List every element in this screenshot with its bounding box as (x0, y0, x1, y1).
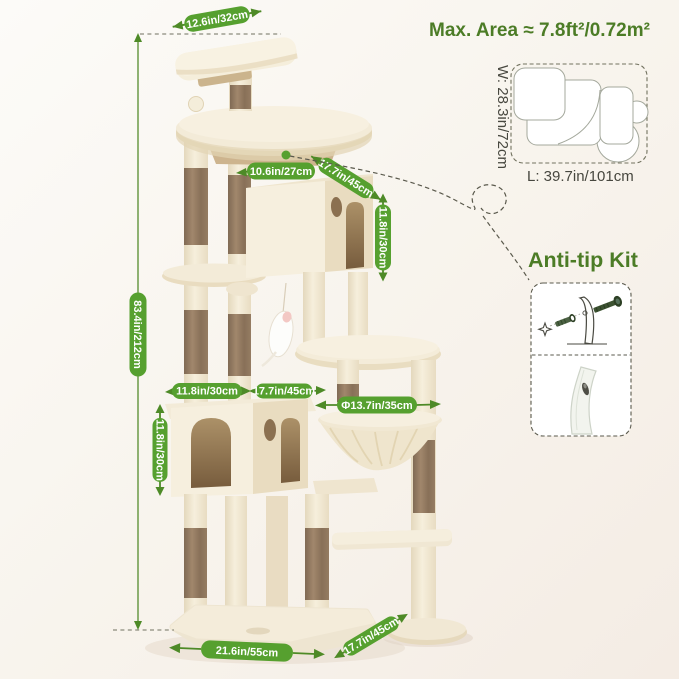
svg-text:11.8in/30cm: 11.8in/30cm (376, 207, 388, 269)
svg-text:11.8in/30cm: 11.8in/30cm (154, 419, 166, 481)
svg-text:Anti-tip Kit: Anti-tip Kit (528, 248, 638, 272)
svg-text:L: 39.7in/101cm: L: 39.7in/101cm (527, 168, 634, 185)
svg-text:83.4in/212cm: 83.4in/212cm (131, 300, 143, 369)
svg-text:17.7in/45cm: 17.7in/45cm (253, 386, 316, 398)
svg-text:Φ13.7in/35cm: Φ13.7in/35cm (341, 400, 413, 412)
svg-text:10.6in/27cm: 10.6in/27cm (250, 166, 313, 178)
svg-text:11.8in/30cm: 11.8in/30cm (176, 386, 238, 398)
svg-text:Max. Area ≈ 7.8ft²/0.72m²: Max. Area ≈ 7.8ft²/0.72m² (429, 20, 650, 41)
svg-text:W: 28.3in/72cm: W: 28.3in/72cm (494, 65, 511, 169)
